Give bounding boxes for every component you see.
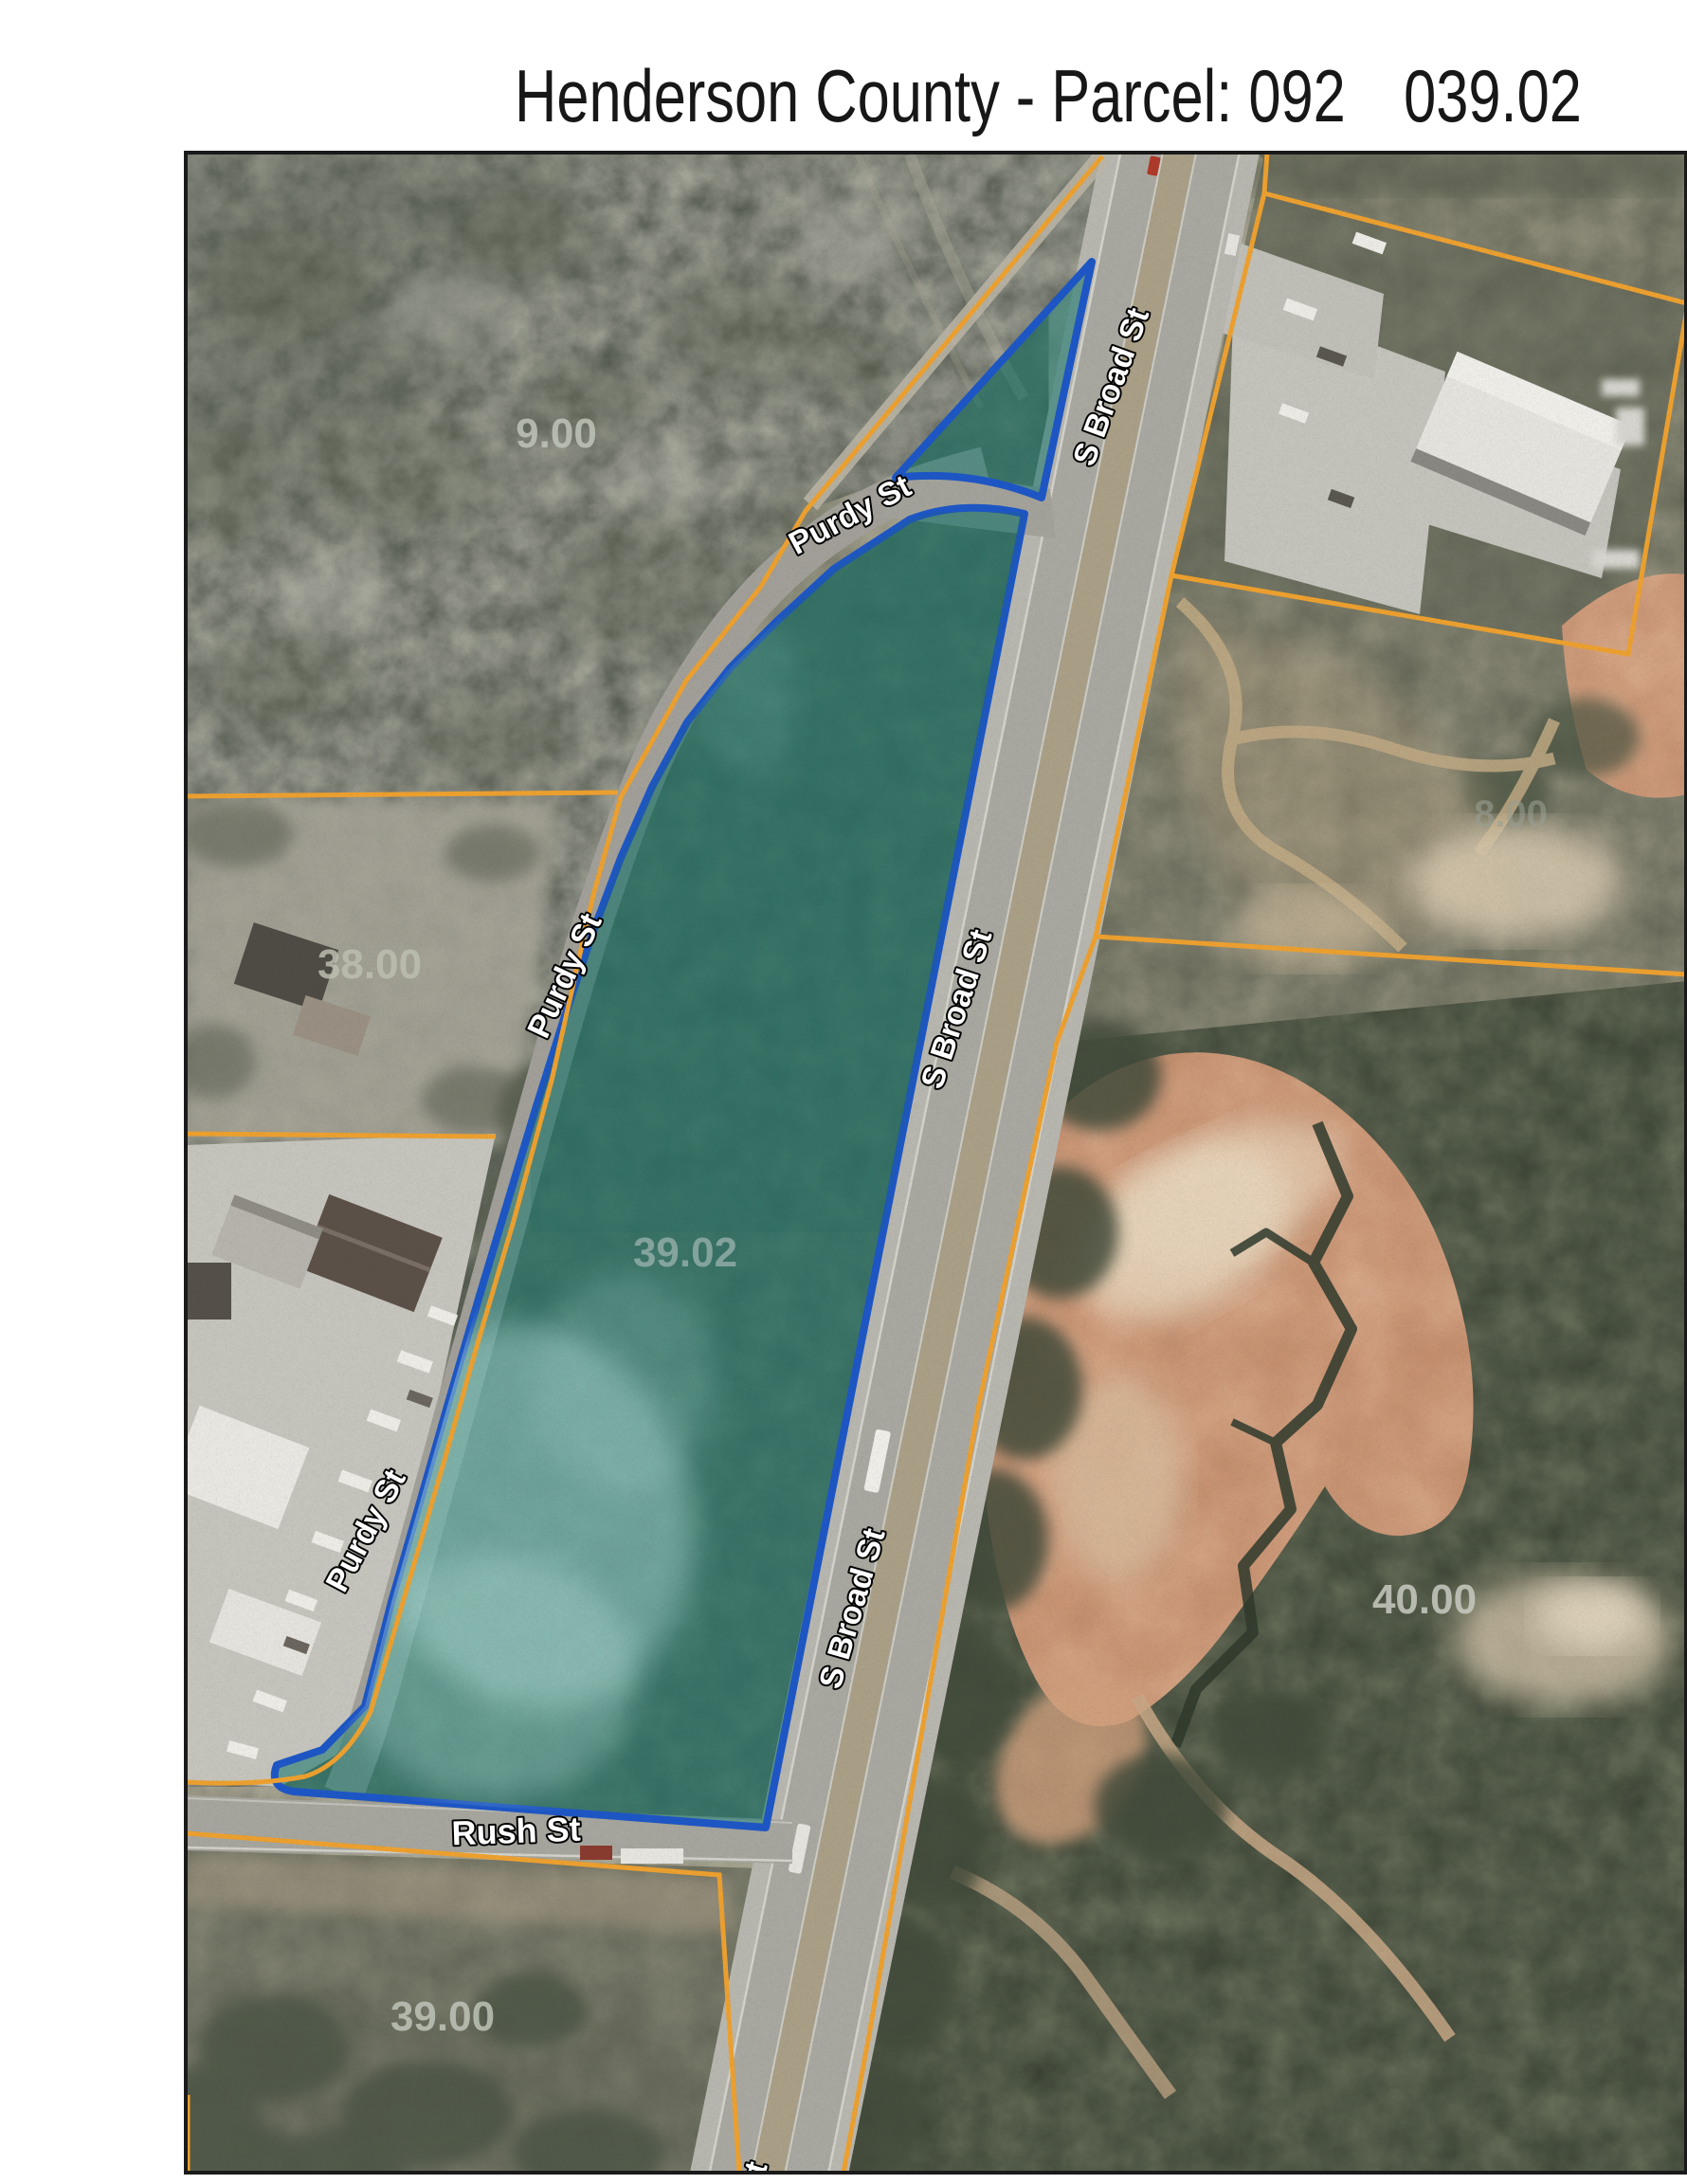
svg-text:39.02: 39.02 [633, 1229, 737, 1276]
svg-text:Henderson County - Parcel: 092: Henderson County - Parcel: 092 039.02 [515, 55, 1582, 137]
svg-text:38.00: 38.00 [317, 941, 422, 988]
svg-text:Rush St: Rush St [451, 1810, 581, 1853]
svg-text:39.00: 39.00 [390, 1993, 495, 2040]
svg-text:40.00: 40.00 [1372, 1576, 1477, 1623]
svg-text:9.00: 9.00 [516, 410, 597, 457]
svg-text:8.00: 8.00 [1474, 793, 1548, 835]
